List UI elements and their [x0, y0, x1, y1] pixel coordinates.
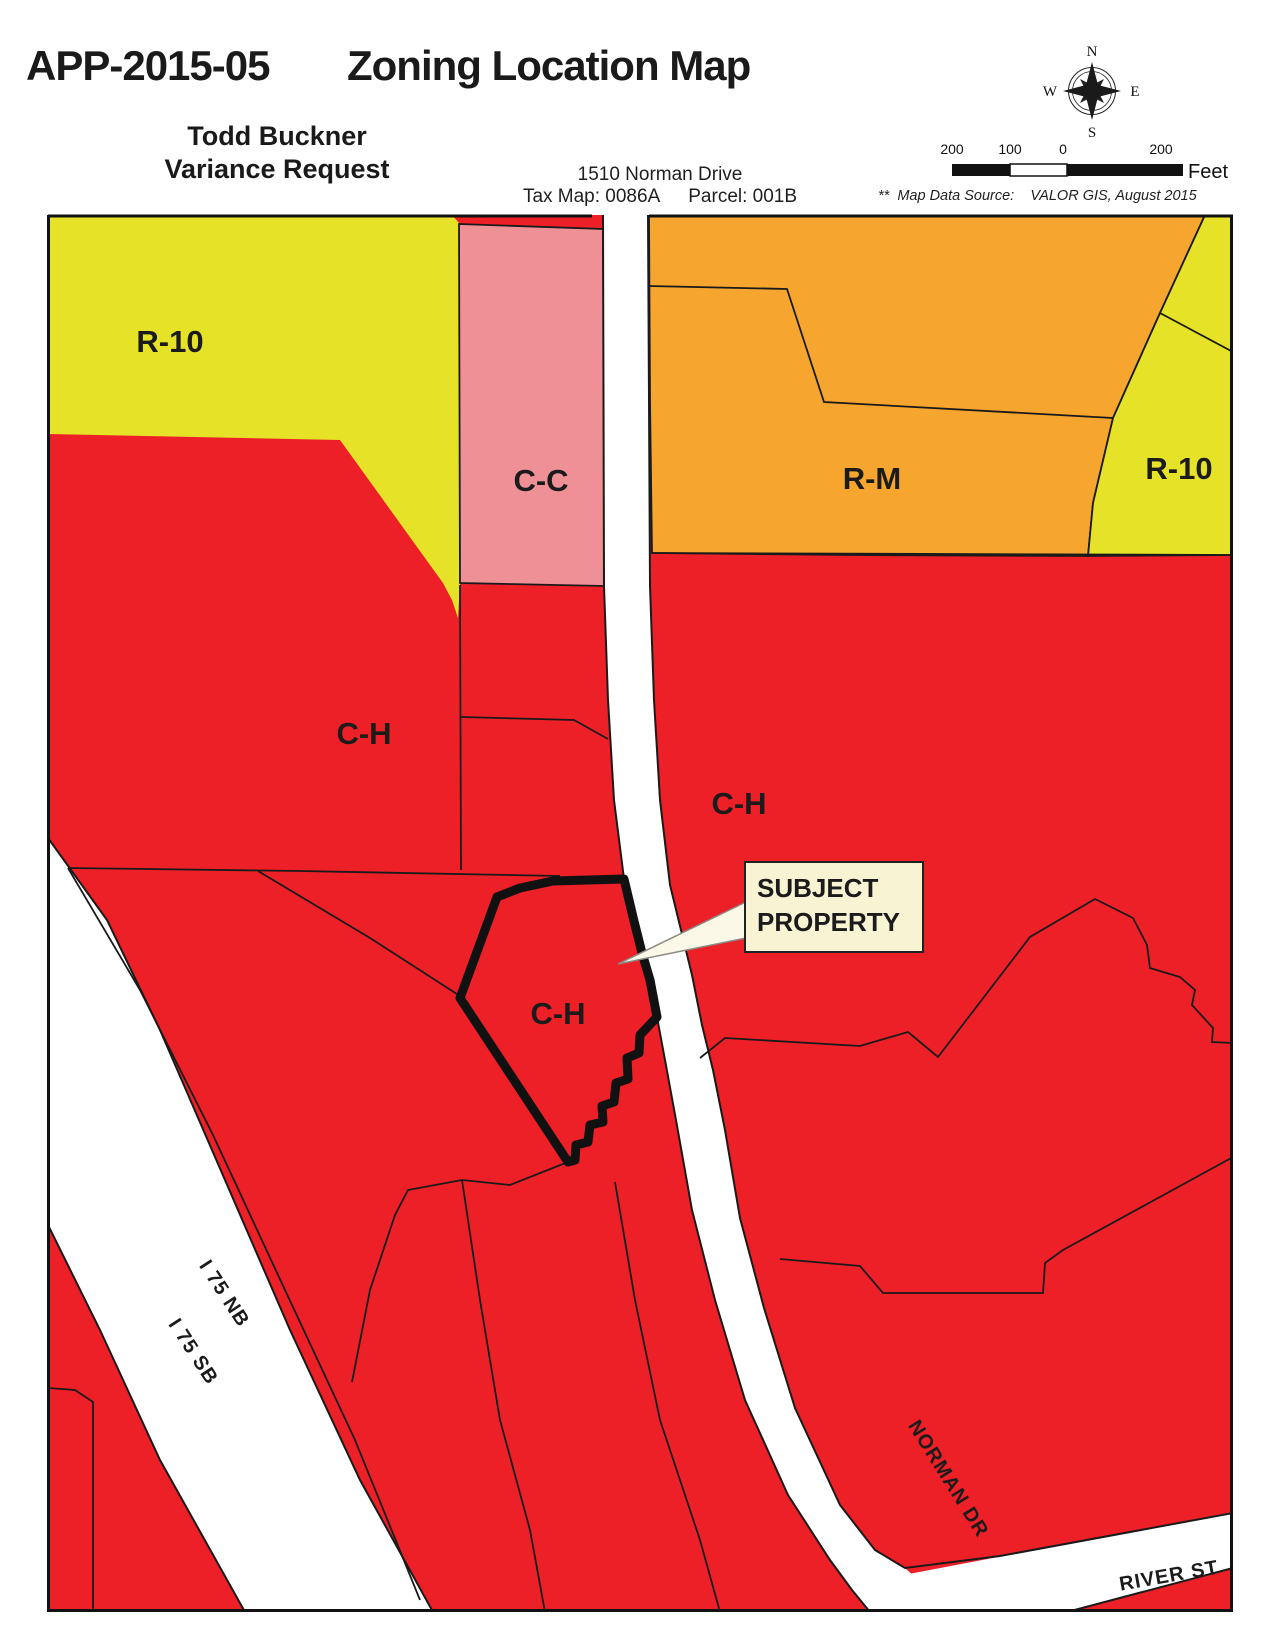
zone-cc-polygon	[459, 224, 605, 586]
scale-tick-100: 100	[998, 141, 1022, 157]
zone-label-cc: C-C	[513, 463, 568, 498]
scale-bar-segment-white	[1010, 164, 1067, 176]
zone-label-ch-subject: C-H	[530, 996, 585, 1031]
scale-tick-0: 0	[1059, 141, 1067, 157]
compass-south-label: S	[1088, 125, 1096, 141]
scale-bar: 200 100 0 200 Feet	[940, 141, 1228, 183]
compass-north-label: N	[1087, 44, 1098, 60]
compass-east-label: E	[1130, 84, 1139, 100]
scale-tick-200-left: 200	[940, 141, 964, 157]
map-canvas: N S W E 200 100 0 200 Feet	[0, 0, 1275, 1650]
scale-unit-label: Feet	[1188, 161, 1228, 183]
zone-label-rm: R-M	[843, 461, 902, 496]
compass-cardinal-star	[1063, 62, 1121, 120]
zone-label-r10-left: R-10	[136, 324, 203, 359]
callout-text-line1: SUBJECT	[757, 873, 878, 903]
callout-text-line2: PROPERTY	[757, 907, 900, 937]
compass-rose: N S W E	[1043, 44, 1140, 141]
zoning-map-page: APP-2015-05 Zoning Location Map Todd Buc…	[0, 0, 1275, 1650]
parcel-line-ch-left-vertical	[460, 585, 461, 870]
scale-bar-segment-black-right	[1067, 164, 1183, 176]
zone-label-ch-left: C-H	[336, 716, 391, 751]
zone-label-ch-right: C-H	[711, 786, 766, 821]
zone-label-r10-right: R-10	[1145, 451, 1212, 486]
scale-bar-segment-black-left	[952, 164, 1010, 176]
scale-tick-200-right: 200	[1149, 141, 1173, 157]
compass-west-label: W	[1043, 84, 1058, 100]
